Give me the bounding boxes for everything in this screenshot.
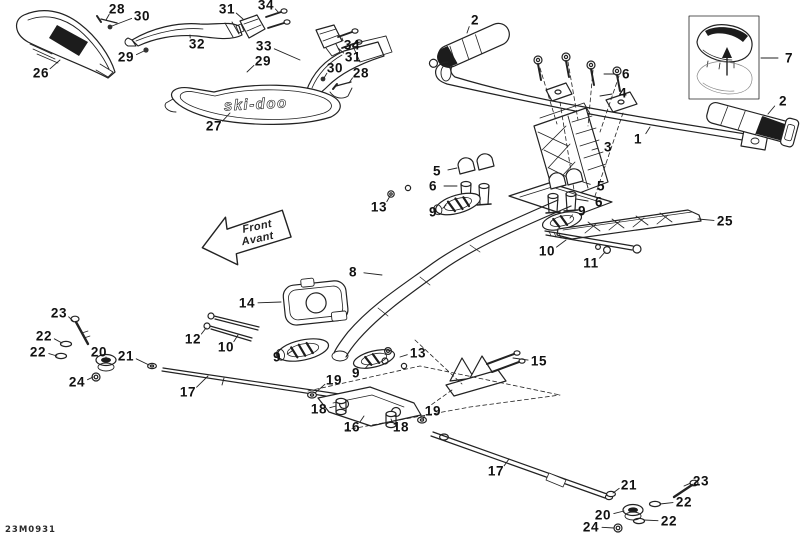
callout-28: 28 bbox=[109, 2, 125, 17]
callout-9: 9 bbox=[429, 205, 437, 220]
callout-leader-13 bbox=[387, 196, 390, 202]
callout-33: 33 bbox=[256, 39, 272, 54]
callout-21: 21 bbox=[621, 478, 637, 493]
callout-9: 9 bbox=[352, 366, 360, 381]
callout-23: 23 bbox=[693, 474, 709, 489]
callout-27: 27 bbox=[206, 119, 222, 134]
callout-29: 29 bbox=[118, 50, 134, 65]
callout-16: 16 bbox=[344, 420, 360, 435]
callout-2: 2 bbox=[779, 94, 787, 109]
callout-17: 17 bbox=[488, 464, 504, 479]
callout-10: 10 bbox=[218, 340, 234, 355]
callout-1: 1 bbox=[634, 132, 642, 147]
callout-17: 17 bbox=[180, 385, 196, 400]
callout-25: 25 bbox=[717, 214, 733, 229]
callout-31: 31 bbox=[345, 50, 361, 65]
callout-34: 34 bbox=[258, 0, 274, 13]
callout-10: 10 bbox=[539, 244, 555, 259]
callout-18: 18 bbox=[311, 402, 327, 417]
callout-14: 14 bbox=[239, 296, 255, 311]
part-21-washer-left bbox=[148, 363, 157, 368]
callout-18: 18 bbox=[393, 420, 409, 435]
exploded-parts-diagram: ski-doo bbox=[0, 0, 800, 541]
part-13-washers-upper bbox=[388, 185, 411, 197]
callout-2: 2 bbox=[471, 13, 479, 28]
part-22-washers-left bbox=[56, 341, 72, 358]
callout-24: 24 bbox=[583, 520, 599, 535]
parts-diagram-page: ski-doo bbox=[0, 0, 800, 541]
part-10-tierods-lower bbox=[210, 316, 259, 341]
part-28-screw-right bbox=[333, 82, 351, 89]
callout-leader-29 bbox=[247, 65, 254, 72]
part-32-brake-lever bbox=[125, 22, 242, 46]
callout-leader-lines bbox=[49, 9, 778, 528]
part-8-steering-shaft bbox=[332, 200, 571, 361]
part-31-clamp-right bbox=[316, 25, 342, 56]
callout-22: 22 bbox=[676, 495, 692, 510]
callout-3: 3 bbox=[604, 140, 612, 155]
part-30-screw-left bbox=[108, 25, 113, 30]
callout-5: 5 bbox=[433, 164, 441, 179]
callout-leader-22 bbox=[54, 339, 62, 343]
callout-leader-22 bbox=[660, 503, 673, 504]
callout-leader-12 bbox=[201, 328, 206, 334]
callout-8: 8 bbox=[349, 265, 357, 280]
callout-20: 20 bbox=[91, 345, 107, 360]
callout-leader-2 bbox=[467, 27, 469, 33]
callout-leader-4 bbox=[600, 94, 612, 96]
callout-30: 30 bbox=[327, 61, 343, 76]
callout-leader-5 bbox=[448, 168, 457, 170]
part-23-bolt-left bbox=[71, 316, 90, 344]
callout-leader-31 bbox=[236, 13, 243, 19]
callout-13: 13 bbox=[410, 346, 426, 361]
part-9-bushing-lower-left bbox=[275, 335, 331, 366]
diagram-code: 23M0931 bbox=[5, 525, 56, 535]
part-17-rod-right bbox=[431, 432, 613, 500]
callout-9: 9 bbox=[578, 204, 586, 219]
callout-26: 26 bbox=[33, 66, 49, 81]
part-14-plate bbox=[282, 275, 349, 326]
callout-leader-2 bbox=[768, 106, 775, 114]
callout-4: 4 bbox=[619, 86, 627, 101]
callout-22: 22 bbox=[30, 345, 46, 360]
callout-leader-21 bbox=[613, 488, 619, 493]
callout-leader-15 bbox=[513, 358, 528, 360]
callout-leader-13 bbox=[400, 355, 407, 357]
part-6-bolts-top bbox=[534, 53, 621, 91]
callout-19: 19 bbox=[326, 373, 342, 388]
callout-leader-33 bbox=[274, 49, 300, 60]
part-29-screw-left bbox=[143, 47, 148, 52]
callout-6: 6 bbox=[622, 67, 630, 82]
pad-brand-text: ski-doo bbox=[223, 94, 288, 114]
part-9-bushing-upper-left bbox=[431, 189, 482, 220]
callout-leader-11 bbox=[600, 252, 605, 258]
callout-21: 21 bbox=[118, 349, 134, 364]
part-5-clamps-left bbox=[458, 154, 494, 174]
callout-22: 22 bbox=[36, 329, 52, 344]
callout-leader-22 bbox=[644, 520, 658, 521]
callout-9: 9 bbox=[273, 350, 281, 365]
callout-leader-1 bbox=[646, 127, 650, 134]
callout-leader-21 bbox=[136, 359, 149, 365]
callout-12: 12 bbox=[185, 332, 201, 347]
callout-leader-10 bbox=[557, 240, 567, 247]
callout-7: 7 bbox=[785, 51, 793, 66]
callout-15: 15 bbox=[531, 354, 547, 369]
callout-13: 13 bbox=[371, 200, 387, 215]
callout-32: 32 bbox=[189, 37, 205, 52]
callout-leader-8 bbox=[364, 273, 382, 275]
part-7-cover-assembly bbox=[689, 16, 759, 99]
callout-leader-24 bbox=[602, 527, 614, 528]
part-24-nut-right bbox=[614, 524, 622, 532]
callout-6: 6 bbox=[595, 195, 603, 210]
callout-19: 19 bbox=[425, 404, 441, 419]
callout-23: 23 bbox=[51, 306, 67, 321]
callout-leader-14 bbox=[258, 302, 281, 303]
callout-5: 5 bbox=[597, 179, 605, 194]
callout-6: 6 bbox=[429, 179, 437, 194]
callout-29: 29 bbox=[255, 54, 271, 69]
part-28-screw-left bbox=[97, 16, 117, 23]
front-direction-arrow: Front Avant bbox=[197, 205, 294, 271]
callout-24: 24 bbox=[69, 375, 85, 390]
part-27-pad: ski-doo bbox=[165, 85, 340, 124]
callout-numbers: 2830313432293329343130282627264721356139… bbox=[30, 0, 793, 535]
callout-31: 31 bbox=[219, 2, 235, 17]
part-20-bushing-right bbox=[623, 505, 643, 521]
callout-11: 11 bbox=[583, 256, 598, 271]
callout-leader-29 bbox=[136, 51, 144, 55]
callout-22: 22 bbox=[661, 514, 677, 529]
callout-30: 30 bbox=[134, 9, 150, 24]
callout-leader-20 bbox=[614, 511, 624, 514]
callout-28: 28 bbox=[353, 66, 369, 81]
